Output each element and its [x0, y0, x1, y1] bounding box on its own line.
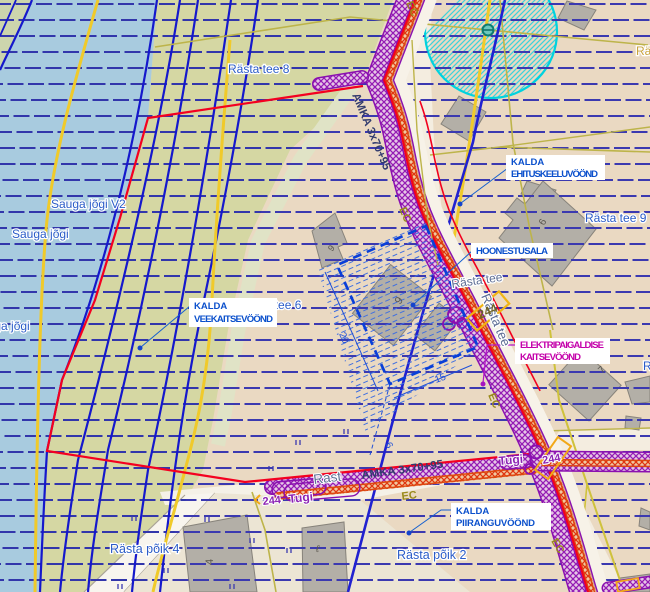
svg-text:Rä: Rä — [636, 44, 650, 58]
svg-text:Rästa tee 8: Rästa tee 8 — [228, 62, 290, 76]
svg-text:Sauga jõgi V2: Sauga jõgi V2 — [51, 197, 126, 211]
svg-text:Sauga jõgi: Sauga jõgi — [12, 227, 69, 241]
svg-text:KALDA: KALDA — [194, 301, 227, 312]
svg-text:PIIRANGUVÖÖND: PIIRANGUVÖÖND — [456, 518, 535, 529]
svg-text:Rästa põik 2: Rästa põik 2 — [397, 548, 467, 562]
svg-text:Tugi: Tugi — [498, 452, 524, 468]
svg-text:Rästa põik 4: Rästa põik 4 — [110, 542, 180, 556]
svg-text:Sauga jõgi: Sauga jõgi — [0, 319, 30, 333]
svg-text:KALDA: KALDA — [511, 157, 544, 168]
svg-text:Rä: Rä — [643, 359, 650, 373]
svg-text:VEEKAITSEVÖÖND: VEEKAITSEVÖÖND — [194, 314, 273, 325]
svg-text:KALDA: KALDA — [456, 506, 489, 517]
svg-text:EC: EC — [401, 489, 418, 503]
svg-text:Rästa tee 9: Rästa tee 9 — [585, 211, 647, 225]
svg-text:244: 244 — [262, 494, 282, 508]
svg-text:ELEKTRIPAIGALDISE: ELEKTRIPAIGALDISE — [520, 340, 604, 351]
svg-text:HOONESTUSALA: HOONESTUSALA — [476, 246, 548, 257]
svg-text:KAITSEVÖÖND: KAITSEVÖÖND — [520, 352, 581, 363]
svg-text:EHITUSKEELUVÖÖND: EHITUSKEELUVÖÖND — [511, 169, 598, 180]
svg-text:4: 4 — [204, 559, 216, 565]
svg-text:Tugi: Tugi — [288, 490, 314, 506]
